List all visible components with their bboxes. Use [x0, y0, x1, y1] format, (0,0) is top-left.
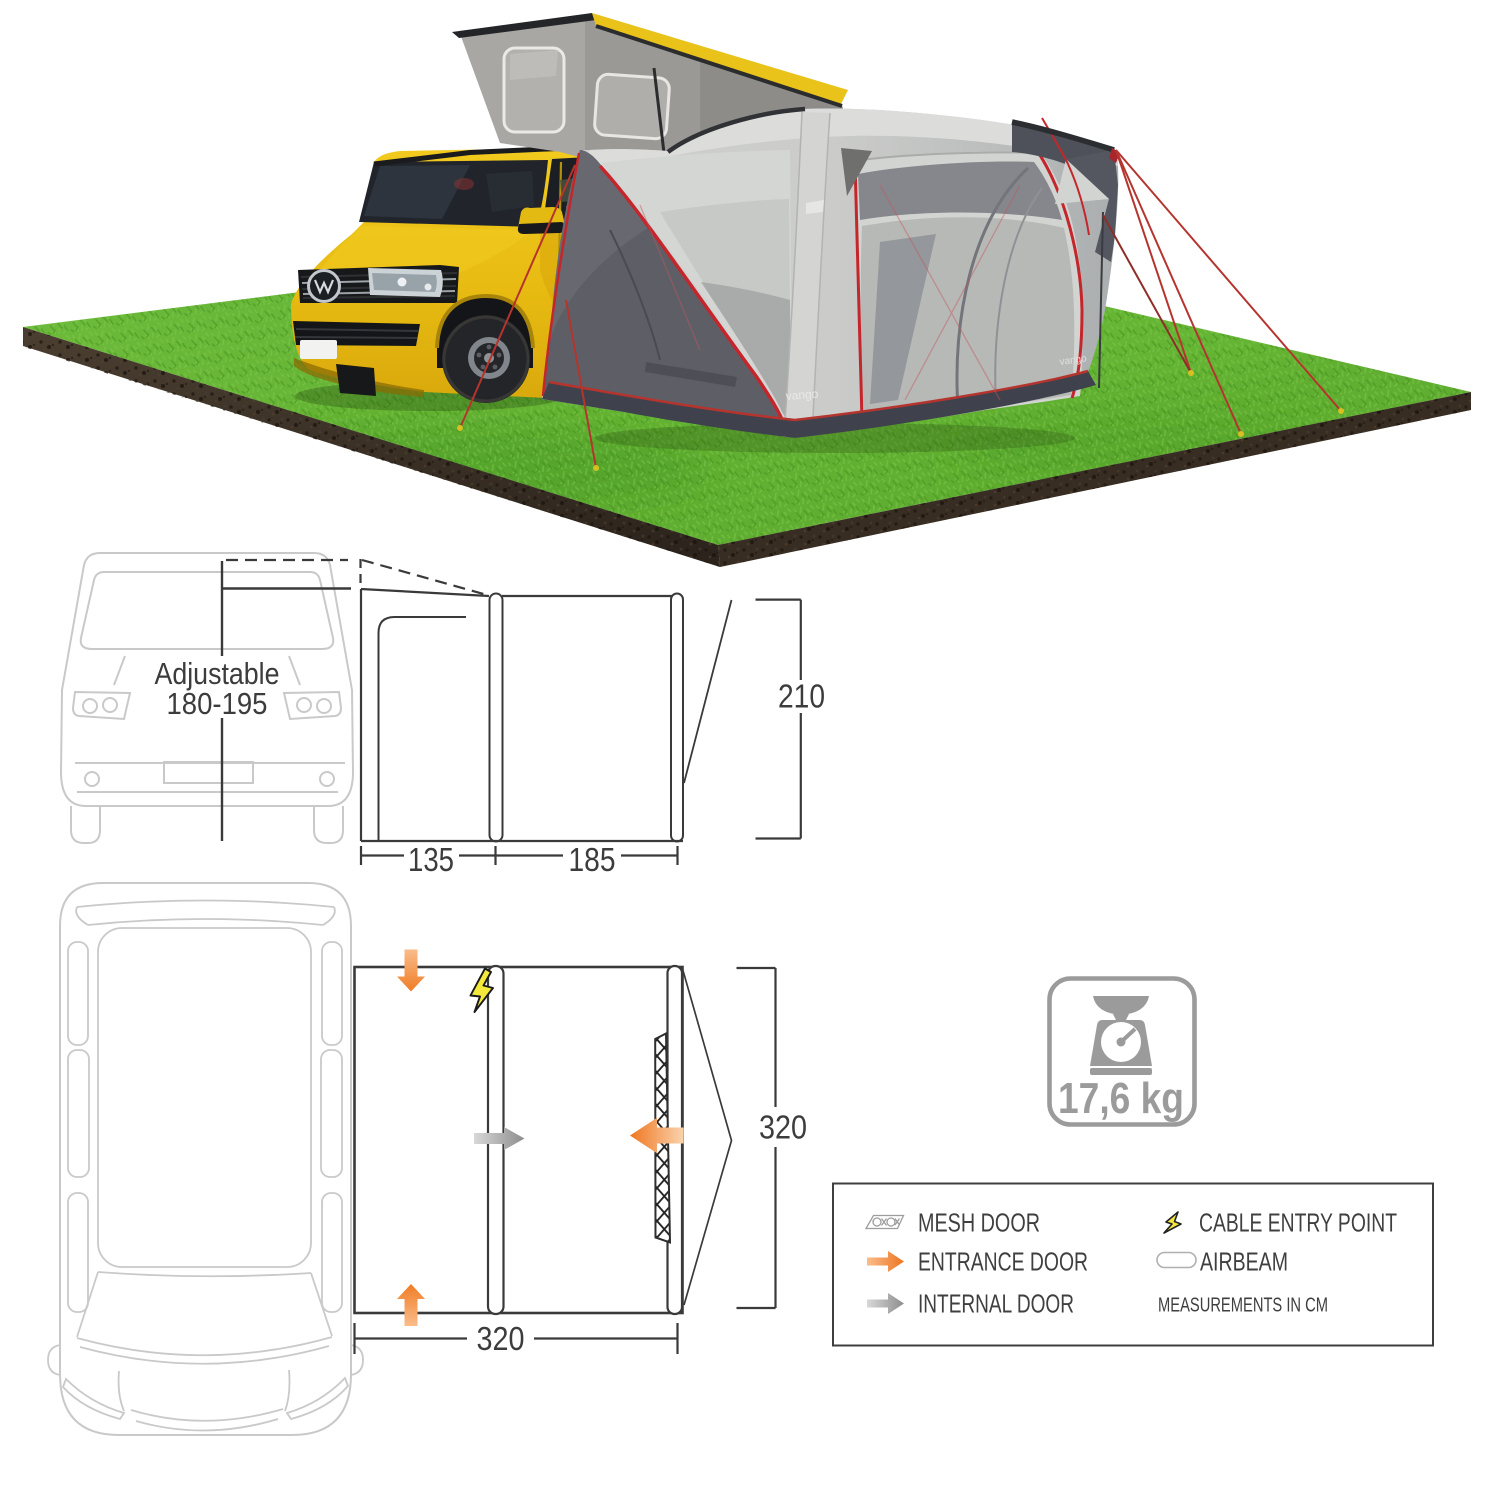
svg-text:CABLE ENTRY POINT: CABLE ENTRY POINT	[1199, 1210, 1397, 1238]
svg-text:MEASUREMENTS IN CM: MEASUREMENTS IN CM	[1158, 1295, 1328, 1317]
svg-text:185: 185	[569, 841, 616, 878]
svg-text:320: 320	[477, 1320, 525, 1357]
svg-text:180-195: 180-195	[167, 686, 268, 721]
svg-text:17,6 kg: 17,6 kg	[1058, 1074, 1184, 1123]
svg-text:320: 320	[759, 1109, 807, 1146]
svg-text:INTERNAL DOOR: INTERNAL DOOR	[918, 1291, 1074, 1319]
svg-text:vango: vango	[785, 387, 819, 403]
svg-text:MESH DOOR: MESH DOOR	[918, 1210, 1040, 1238]
svg-text:AIRBEAM: AIRBEAM	[1200, 1249, 1288, 1277]
svg-text:ENTRANCE DOOR: ENTRANCE DOOR	[918, 1249, 1088, 1277]
svg-text:135: 135	[408, 841, 454, 878]
svg-text:210: 210	[778, 678, 825, 715]
